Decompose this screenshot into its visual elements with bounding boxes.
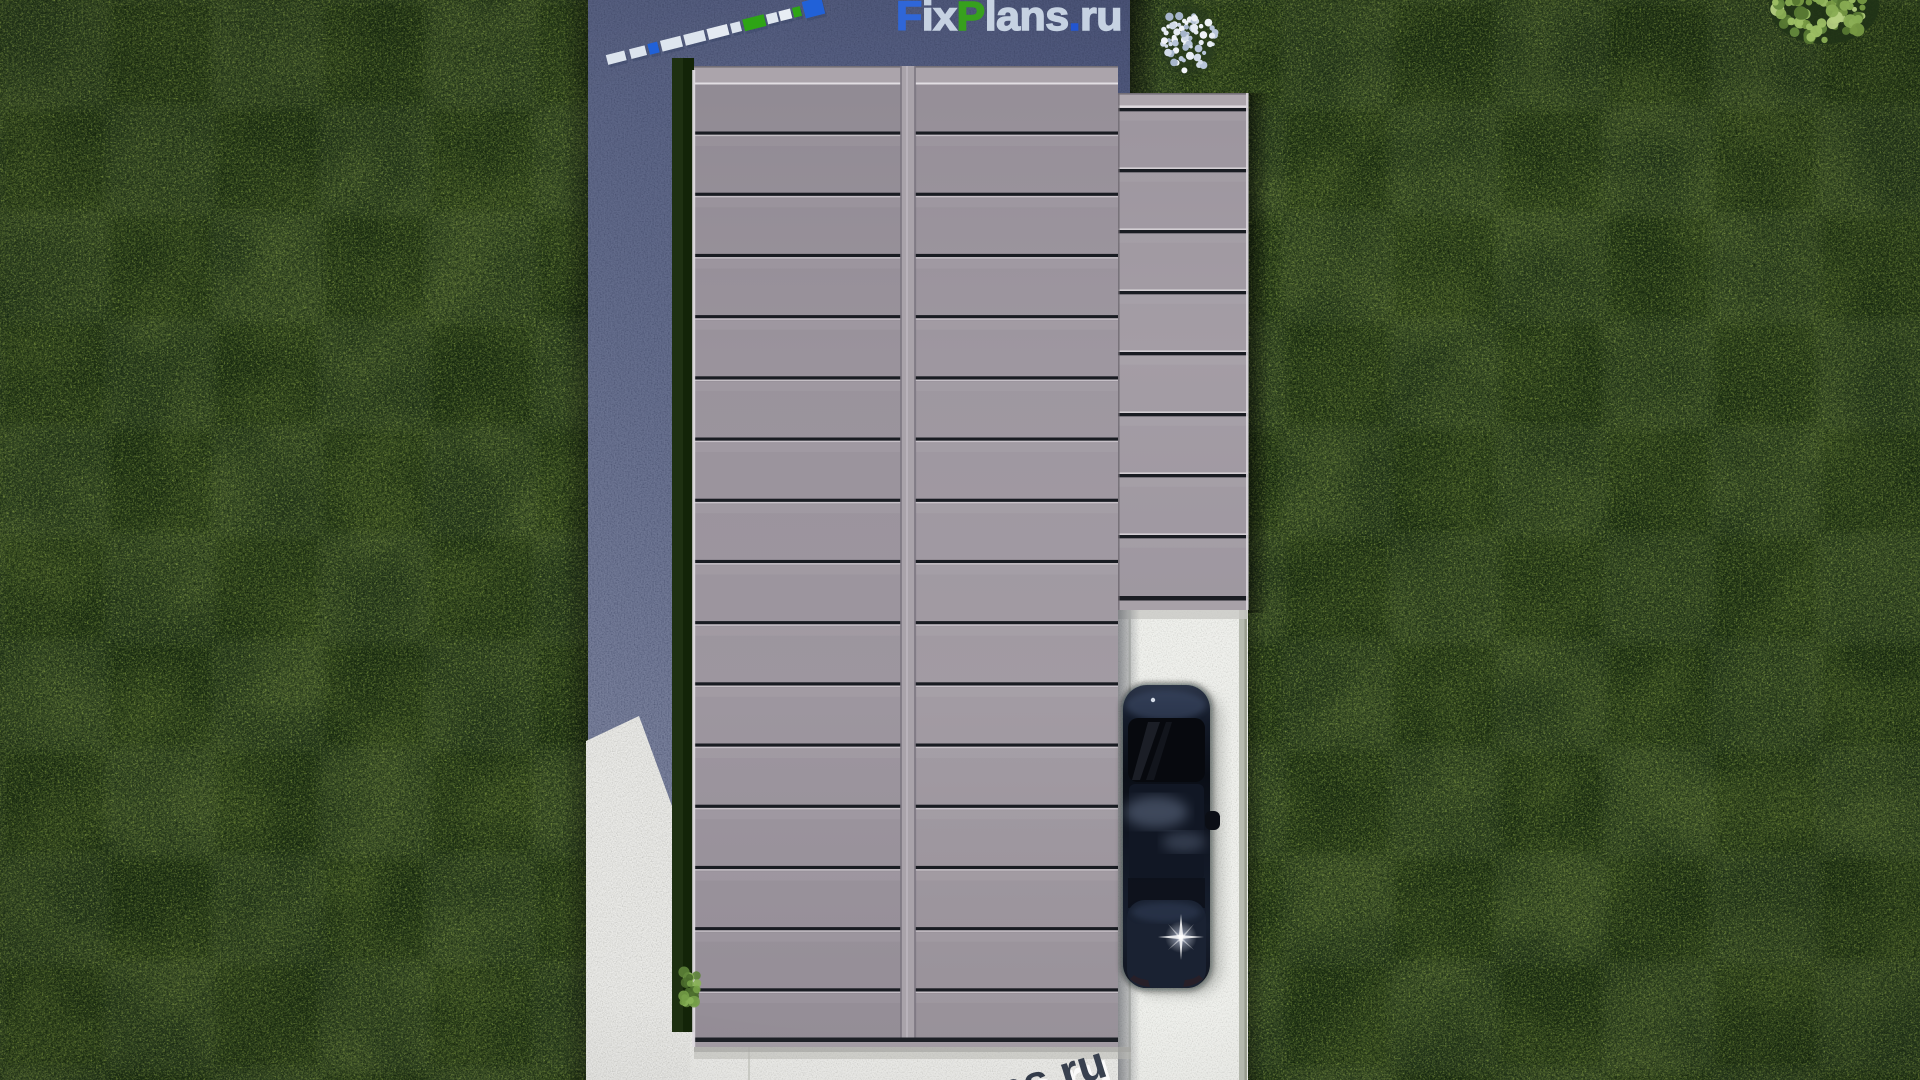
- svg-text:FixPlans.ru: FixPlans.ru: [896, 0, 1122, 39]
